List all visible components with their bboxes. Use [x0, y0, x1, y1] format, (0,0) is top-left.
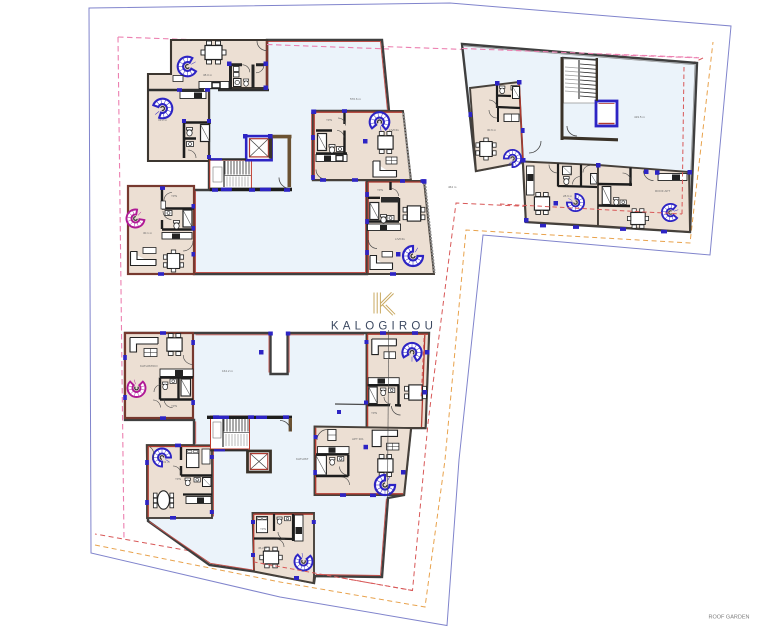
svg-text:ROOF GARDEN: ROOF GARDEN — [709, 615, 750, 621]
svg-text:30.6 m: 30.6 m — [487, 128, 497, 132]
svg-text:31 m: 31 m — [163, 460, 170, 464]
svg-text:YPN: YPN — [326, 118, 332, 122]
svg-text:KALOGIROU: KALOGIROU — [331, 321, 437, 333]
svg-text:LIVING: LIVING — [395, 237, 406, 241]
svg-text:570.6 m: 570.6 m — [350, 97, 361, 101]
svg-text:LIVING: LIVING — [389, 128, 400, 132]
svg-text:YPN: YPN — [171, 194, 177, 198]
svg-text:419.5 m: 419.5 m — [634, 115, 645, 119]
svg-text:30.1 m: 30.1 m — [143, 231, 153, 235]
svg-text:YPN: YPN — [171, 404, 177, 408]
svg-text:ROOF APT: ROOF APT — [655, 189, 670, 193]
svg-text:38.0 m: 38.0 m — [203, 73, 213, 77]
svg-text:28.9 m: 28.9 m — [563, 194, 573, 198]
svg-text:164.2 m: 164.2 m — [222, 369, 233, 373]
svg-text:45.2 m: 45.2 m — [258, 546, 268, 550]
svg-text:YPN: YPN — [175, 477, 181, 481]
svg-text:31.2 m: 31.2 m — [158, 118, 168, 122]
svg-text:YPN: YPN — [260, 527, 266, 531]
svg-text:YPN: YPN — [371, 411, 377, 415]
svg-text:APT 301: APT 301 — [352, 437, 364, 441]
svg-text:KATHIST: KATHIST — [296, 457, 309, 461]
svg-text:KATHISTIKO: KATHISTIKO — [140, 364, 158, 368]
svg-text:YPN: YPN — [377, 188, 383, 192]
svg-text:464 m: 464 m — [448, 185, 457, 189]
